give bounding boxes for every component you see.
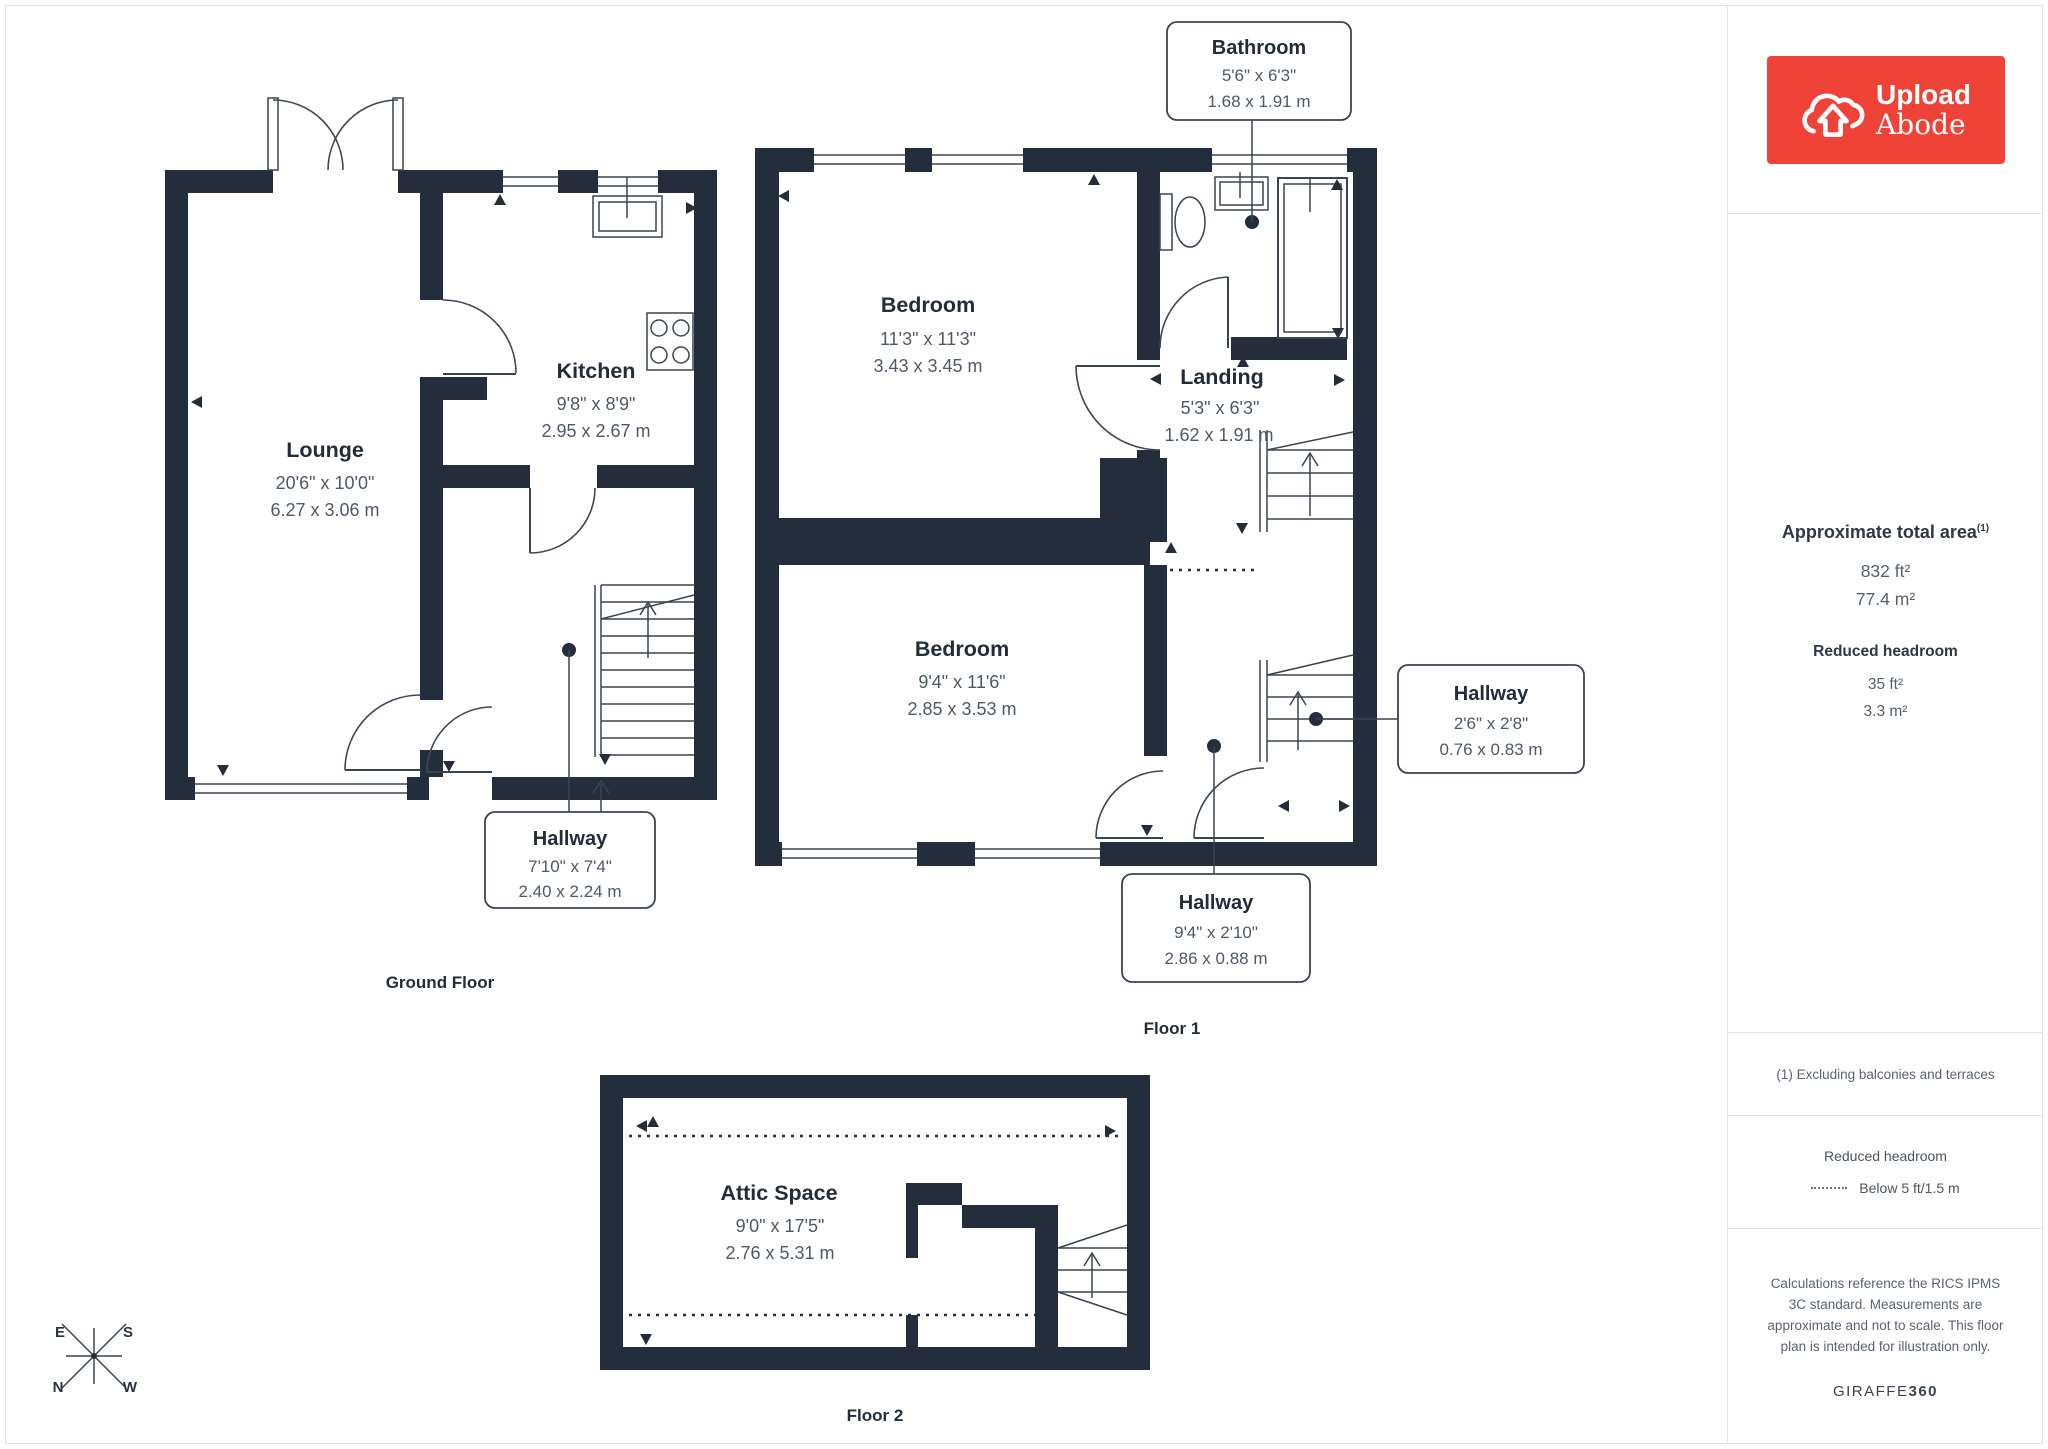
floor2-stairs (1058, 1225, 1127, 1315)
svg-text:1.68 x 1.91 m: 1.68 x 1.91 m (1207, 92, 1310, 111)
compass-south: S (123, 1324, 133, 1341)
bathroom-sink (1215, 172, 1268, 210)
logo-text: Upload Abode (1876, 80, 1971, 139)
svg-text:6.27 x 3.06 m: 6.27 x 3.06 m (270, 500, 379, 520)
floor1-stairs (1260, 430, 1353, 762)
caption-floor-1: Floor 1 (1144, 1019, 1201, 1038)
ground-floor-plan: Lounge 20'6" x 10'0" 6.27 x 3.06 m Kitch… (165, 98, 717, 992)
reduced-headroom-sqft: 35 ft² (1868, 671, 1903, 698)
svg-text:20'6" x 10'0": 20'6" x 10'0" (276, 473, 375, 493)
caption-floor-2: Floor 2 (847, 1406, 904, 1425)
svg-text:2.85 x 3.53 m: 2.85 x 3.53 m (907, 699, 1016, 719)
svg-text:5'3" x 6'3": 5'3" x 6'3" (1181, 398, 1260, 418)
room-label-bedroom-2: Bedroom 9'4" x 11'6" 2.85 x 3.53 m (907, 637, 1016, 719)
french-doors (268, 98, 403, 170)
svg-text:Bedroom: Bedroom (881, 293, 975, 317)
room-label-attic: Attic Space 9'0" x 17'5" 2.76 x 5.31 m (720, 1181, 837, 1263)
svg-text:3.43 x 3.45 m: 3.43 x 3.45 m (873, 356, 982, 376)
provider-name: GIRAFFE (1833, 1383, 1909, 1400)
room-label-lounge: Lounge 20'6" x 10'0" 6.27 x 3.06 m (270, 438, 379, 520)
logo-word-upload: Upload (1876, 80, 1971, 109)
svg-text:2.40 x 2.24 m: 2.40 x 2.24 m (518, 882, 621, 901)
svg-text:9'0" x 17'5": 9'0" x 17'5" (736, 1216, 825, 1236)
svg-text:9'8" x 8'9": 9'8" x 8'9" (557, 394, 636, 414)
svg-text:2'6" x 2'8": 2'6" x 2'8" (1454, 714, 1528, 733)
svg-text:Hallway: Hallway (1454, 683, 1529, 705)
legend-label: Below 5 ft/1.5 m (1859, 1180, 1959, 1196)
legend-section: Reduced headroom Below 5 ft/1.5 m (1728, 1116, 2043, 1229)
dotted-line-sample (1811, 1187, 1847, 1189)
svg-text:2.86 x 0.88 m: 2.86 x 0.88 m (1164, 949, 1267, 968)
logo-section: Upload Abode (1728, 6, 2043, 214)
svg-text:Bedroom: Bedroom (915, 637, 1009, 661)
caption-ground-floor: Ground Floor (386, 973, 495, 992)
svg-text:Hallway: Hallway (1179, 892, 1254, 914)
floor-2-plan: Attic Space 9'0" x 17'5" 2.76 x 5.31 m F… (600, 1075, 1150, 1425)
area-summary-section: Approximate total area(1) 832 ft² 77.4 m… (1728, 214, 2043, 1033)
legend-title: Reduced headroom (1824, 1148, 1947, 1164)
upload-abode-logo: Upload Abode (1767, 56, 2005, 164)
floor1-windows (782, 148, 1347, 866)
info-sidebar: Upload Abode Approximate total area(1) 8… (1727, 6, 2043, 1443)
disclaimer-section: Calculations reference the RICS IPMS 3C … (1728, 1229, 2043, 1443)
bathroom-toilet (1160, 194, 1205, 250)
total-area-sqm: 77.4 m² (1856, 585, 1915, 613)
total-area-title-text: Approximate total area (1782, 522, 1977, 542)
cloud-house-icon (1800, 77, 1866, 143)
total-area-footnote-marker: (1) (1977, 523, 1989, 534)
svg-text:7'10" x 7'4": 7'10" x 7'4" (528, 857, 612, 876)
room-label-kitchen: Kitchen 9'8" x 8'9" 2.95 x 2.67 m (541, 359, 650, 441)
callout-ground-hallway: Hallway 7'10" x 7'4" 2.40 x 2.24 m (485, 643, 655, 908)
svg-text:11'3" x 11'3": 11'3" x 11'3" (880, 329, 976, 349)
reduced-headroom-sqm: 3.3 m² (1864, 698, 1908, 725)
svg-text:Kitchen: Kitchen (557, 359, 636, 383)
floor-1-plan: Bathroom 5'6" x 6'3" 1.68 x 1.91 m Bedro… (755, 22, 1584, 1038)
svg-text:1.62 x 1.91 m: 1.62 x 1.91 m (1164, 425, 1273, 445)
compass-icon: E S N W (53, 1324, 138, 1396)
ground-stairs (595, 585, 694, 757)
svg-text:Attic Space: Attic Space (720, 1181, 837, 1205)
compass-north: N (53, 1379, 64, 1396)
svg-text:0.76 x 0.83 m: 0.76 x 0.83 m (1439, 740, 1542, 759)
disclaimer-text: Calculations reference the RICS IPMS 3C … (1765, 1273, 2007, 1357)
compass-east: E (55, 1324, 65, 1341)
svg-text:Lounge: Lounge (286, 438, 364, 462)
logo-word-abode: Abode (1876, 110, 1971, 139)
total-area-sqft: 832 ft² (1861, 557, 1911, 585)
svg-text:Hallway: Hallway (533, 828, 608, 850)
footnote-section: (1) Excluding balconies and terraces (1728, 1033, 2043, 1116)
room-label-bedroom-1: Bedroom 11'3" x 11'3" 3.43 x 3.45 m (873, 293, 982, 376)
footnote-text: (1) Excluding balconies and terraces (1776, 1067, 1994, 1082)
svg-text:5'6" x 6'3": 5'6" x 6'3" (1222, 66, 1296, 85)
svg-text:Bathroom: Bathroom (1212, 37, 1306, 59)
giraffe360-brand: GIRAFFE360 (1833, 1383, 1938, 1400)
compass-west: W (123, 1379, 138, 1396)
callout-stair-hallway: Hallway 2'6" x 2'8" 0.76 x 0.83 m (1309, 665, 1584, 773)
provider-suffix: 360 (1908, 1383, 1938, 1400)
floorplan-page: Lounge 20'6" x 10'0" 6.27 x 3.06 m Kitch… (0, 0, 2048, 1449)
bathroom-shower (1278, 178, 1347, 338)
room-label-landing: Landing 5'3" x 6'3" 1.62 x 1.91 m (1164, 365, 1273, 445)
total-area-title: Approximate total area(1) (1782, 522, 1989, 543)
svg-text:9'4" x 11'6": 9'4" x 11'6" (918, 672, 1005, 692)
svg-text:2.76 x 5.31 m: 2.76 x 5.31 m (725, 1243, 834, 1263)
svg-text:2.95 x 2.67 m: 2.95 x 2.67 m (541, 421, 650, 441)
reduced-headroom-title: Reduced headroom (1813, 643, 1958, 661)
svg-text:9'4" x 2'10": 9'4" x 2'10" (1174, 923, 1258, 942)
svg-text:Landing: Landing (1180, 365, 1264, 389)
kitchen-hob (647, 313, 693, 370)
